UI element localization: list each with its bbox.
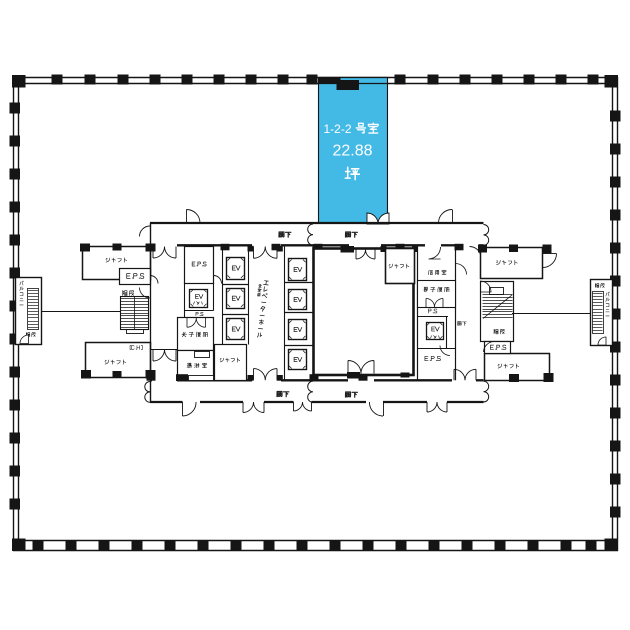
svg-text:1-2-2: 1-2-2 <box>323 122 351 136</box>
svg-text:22.88: 22.88 <box>332 143 372 160</box>
